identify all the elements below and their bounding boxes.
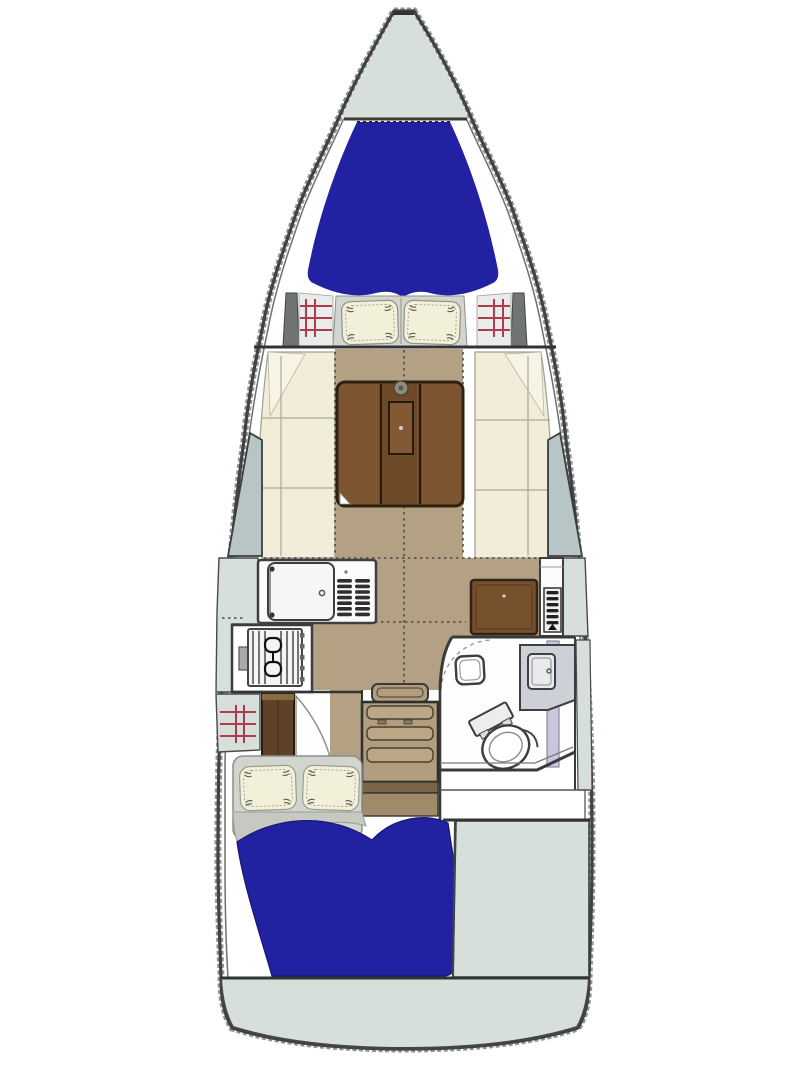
companionway-landing [362, 782, 438, 816]
hull-shelf-port [299, 293, 333, 346]
aft-berth-mattress [237, 818, 455, 976]
hanging-locker [262, 694, 294, 757]
chart-table [471, 580, 537, 634]
side-deck-starboard-fwd [562, 558, 588, 636]
gimbal-bracket [239, 647, 248, 670]
side-deck-starboard-aft [576, 640, 592, 790]
floorplan-canvas [0, 0, 810, 1080]
sailboat-floorplan [0, 0, 810, 1080]
head-counter [520, 645, 575, 710]
stern [221, 978, 589, 1048]
hull-shelf-starboard [477, 293, 511, 346]
aft-pillow-port [239, 765, 297, 811]
transom-deck [221, 978, 589, 1048]
shelf-ramp-starboard [511, 293, 527, 346]
stove-alcove [232, 625, 312, 692]
shelf-ramp-port [283, 293, 299, 346]
settee-starboard [475, 352, 551, 558]
companionway [362, 684, 438, 816]
aft-pillow-starboard [302, 765, 360, 811]
salon-table [337, 381, 463, 506]
cockpit-footwell [453, 821, 589, 977]
shower-seat [455, 655, 484, 684]
galley-counter [258, 560, 376, 623]
companionway-steps [362, 684, 438, 782]
settee-port [259, 352, 335, 558]
v-berth-pillow-starboard [403, 300, 460, 345]
instrument-panel [544, 588, 561, 632]
v-berth-pillow-port [341, 300, 398, 345]
